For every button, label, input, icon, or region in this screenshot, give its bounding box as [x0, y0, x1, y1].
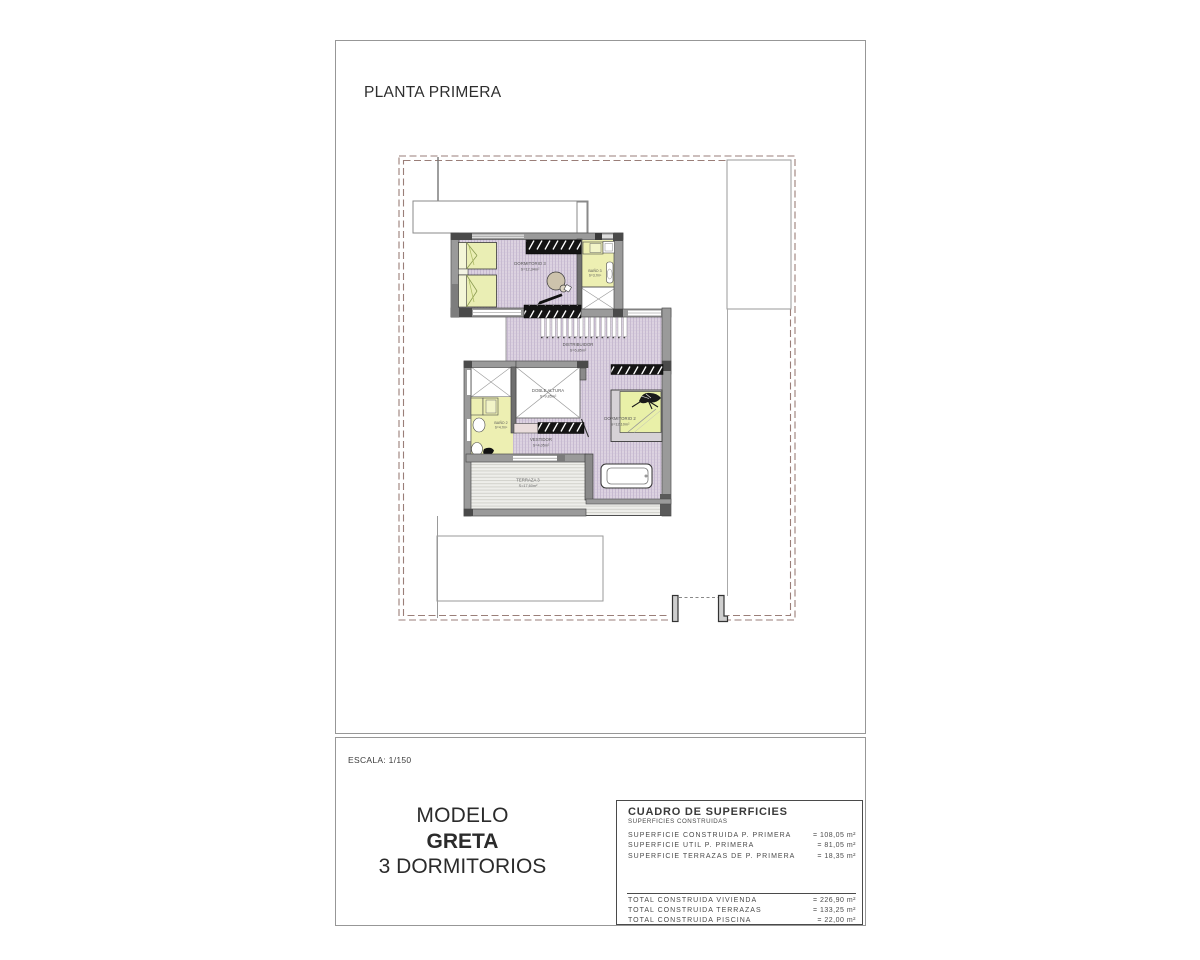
svg-text:DORMITORIO 2: DORMITORIO 2 — [604, 416, 636, 421]
svg-text:DORMITORIO 3: DORMITORIO 3 — [514, 261, 546, 266]
svg-text:S=12,34m²: S=12,34m² — [521, 268, 540, 272]
svg-text:S=6,85m²: S=6,85m² — [570, 349, 587, 353]
svg-text:TERRAZA 3: TERRAZA 3 — [516, 478, 540, 483]
svg-text:BAÑO 2: BAÑO 2 — [494, 420, 507, 425]
svg-text:DOBLE ALTURA: DOBLE ALTURA — [532, 388, 564, 393]
svg-text:S=3,7m²: S=3,7m² — [589, 274, 602, 278]
svg-text:S=4,7m²: S=4,7m² — [495, 426, 508, 430]
svg-text:VESTIDOR: VESTIDOR — [530, 437, 552, 442]
svg-text:S=17,60m²: S=17,60m² — [519, 484, 538, 488]
svg-text:BAÑO 3: BAÑO 3 — [588, 268, 601, 273]
svg-text:S=9,85m²: S=9,85m² — [540, 395, 557, 399]
svg-text:DISTRIBUIDOR: DISTRIBUIDOR — [563, 342, 594, 347]
svg-text:S=4,05m²: S=4,05m² — [533, 444, 550, 448]
svg-text:S=12,10m²: S=12,10m² — [611, 423, 630, 427]
